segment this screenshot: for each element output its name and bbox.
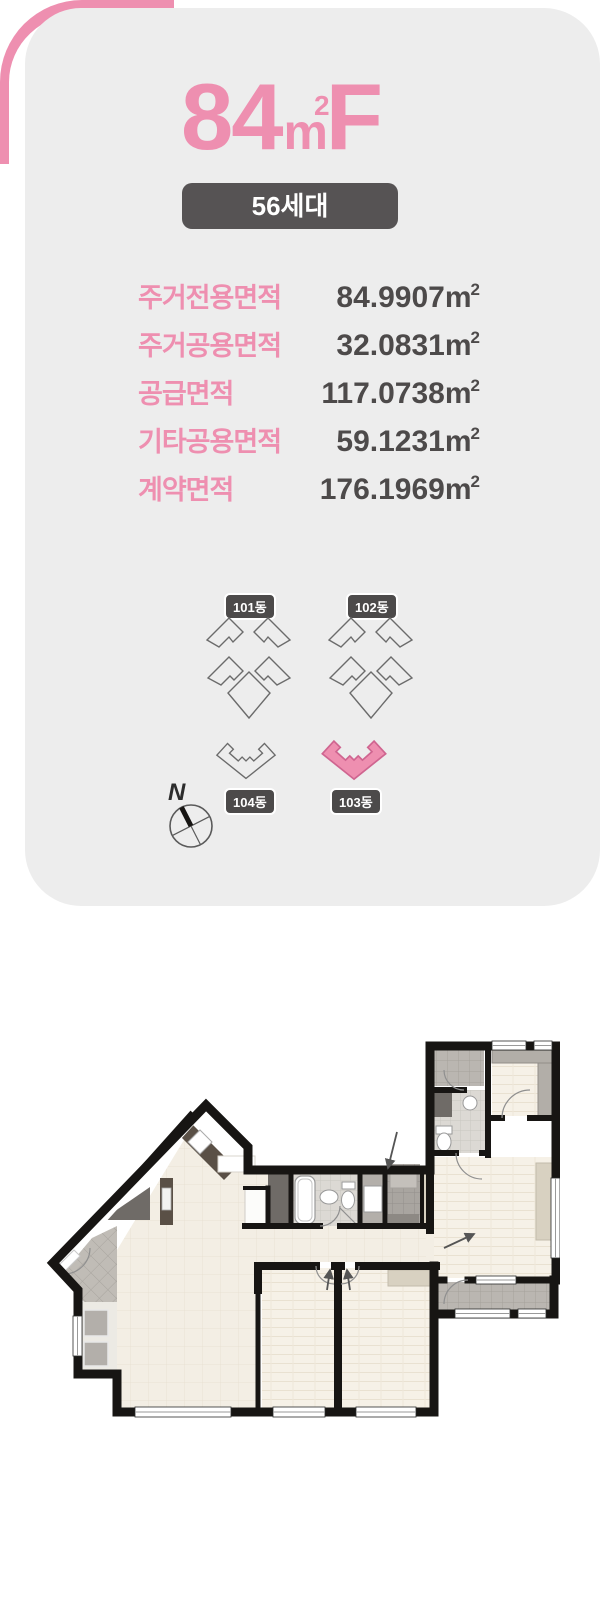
area-table: 주거전용면적 84.9907m2 주거공용면적 32.0831m2 공급면적 1… [138,276,480,516]
table-row: 주거공용면적 32.0831m2 [138,324,480,372]
room-bathroom [293,1174,358,1226]
unit-type-title: 84m2F [0,70,562,164]
room-bedroom-3 [340,1268,432,1408]
row-value: 84.9907m2 [336,280,480,315]
row-label: 주거공용면적 [138,324,281,363]
row-label: 기타공용면적 [138,420,281,459]
table-row: 공급면적 117.0738m2 [138,372,480,420]
table-row: 주거전용면적 84.9907m2 [138,276,480,324]
row-value: 117.0738m2 [321,376,480,411]
room-wing-bedroom [434,1157,552,1278]
row-value: 176.1969m2 [320,472,480,507]
room-utility [80,1302,117,1374]
building-101-shape[interactable] [206,615,292,723]
building-badge-103[interactable]: 103동 [330,788,382,815]
floor-plan [40,950,560,1420]
compass-north-icon: N [158,774,224,856]
building-103-shape-highlighted[interactable] [317,731,391,785]
table-row: 기타공용면적 59.1231m2 [138,420,480,468]
row-label: 계약면적 [138,468,233,507]
room-wing-bathroom [432,1090,488,1153]
room-wing-balcony [434,1050,484,1086]
room-bedroom-2 [262,1268,335,1408]
row-label: 공급면적 [138,372,233,411]
type-letter: F [326,64,381,169]
row-value: 32.0831m2 [336,328,480,363]
wing-closet [536,1163,552,1240]
building-badge-104[interactable]: 104동 [224,788,276,815]
building-102-shape[interactable] [328,615,414,723]
room-rear-balcony [438,1282,554,1311]
compass-n-label: N [168,779,186,806]
area-number: 84 [181,64,282,169]
room-wardrobe [492,1050,552,1116]
table-row: 계약면적 176.1969m2 [138,468,480,516]
households-badge: 56세대 [182,183,398,229]
row-label: 주거전용면적 [138,276,281,315]
row-value: 59.1231m2 [336,424,480,459]
